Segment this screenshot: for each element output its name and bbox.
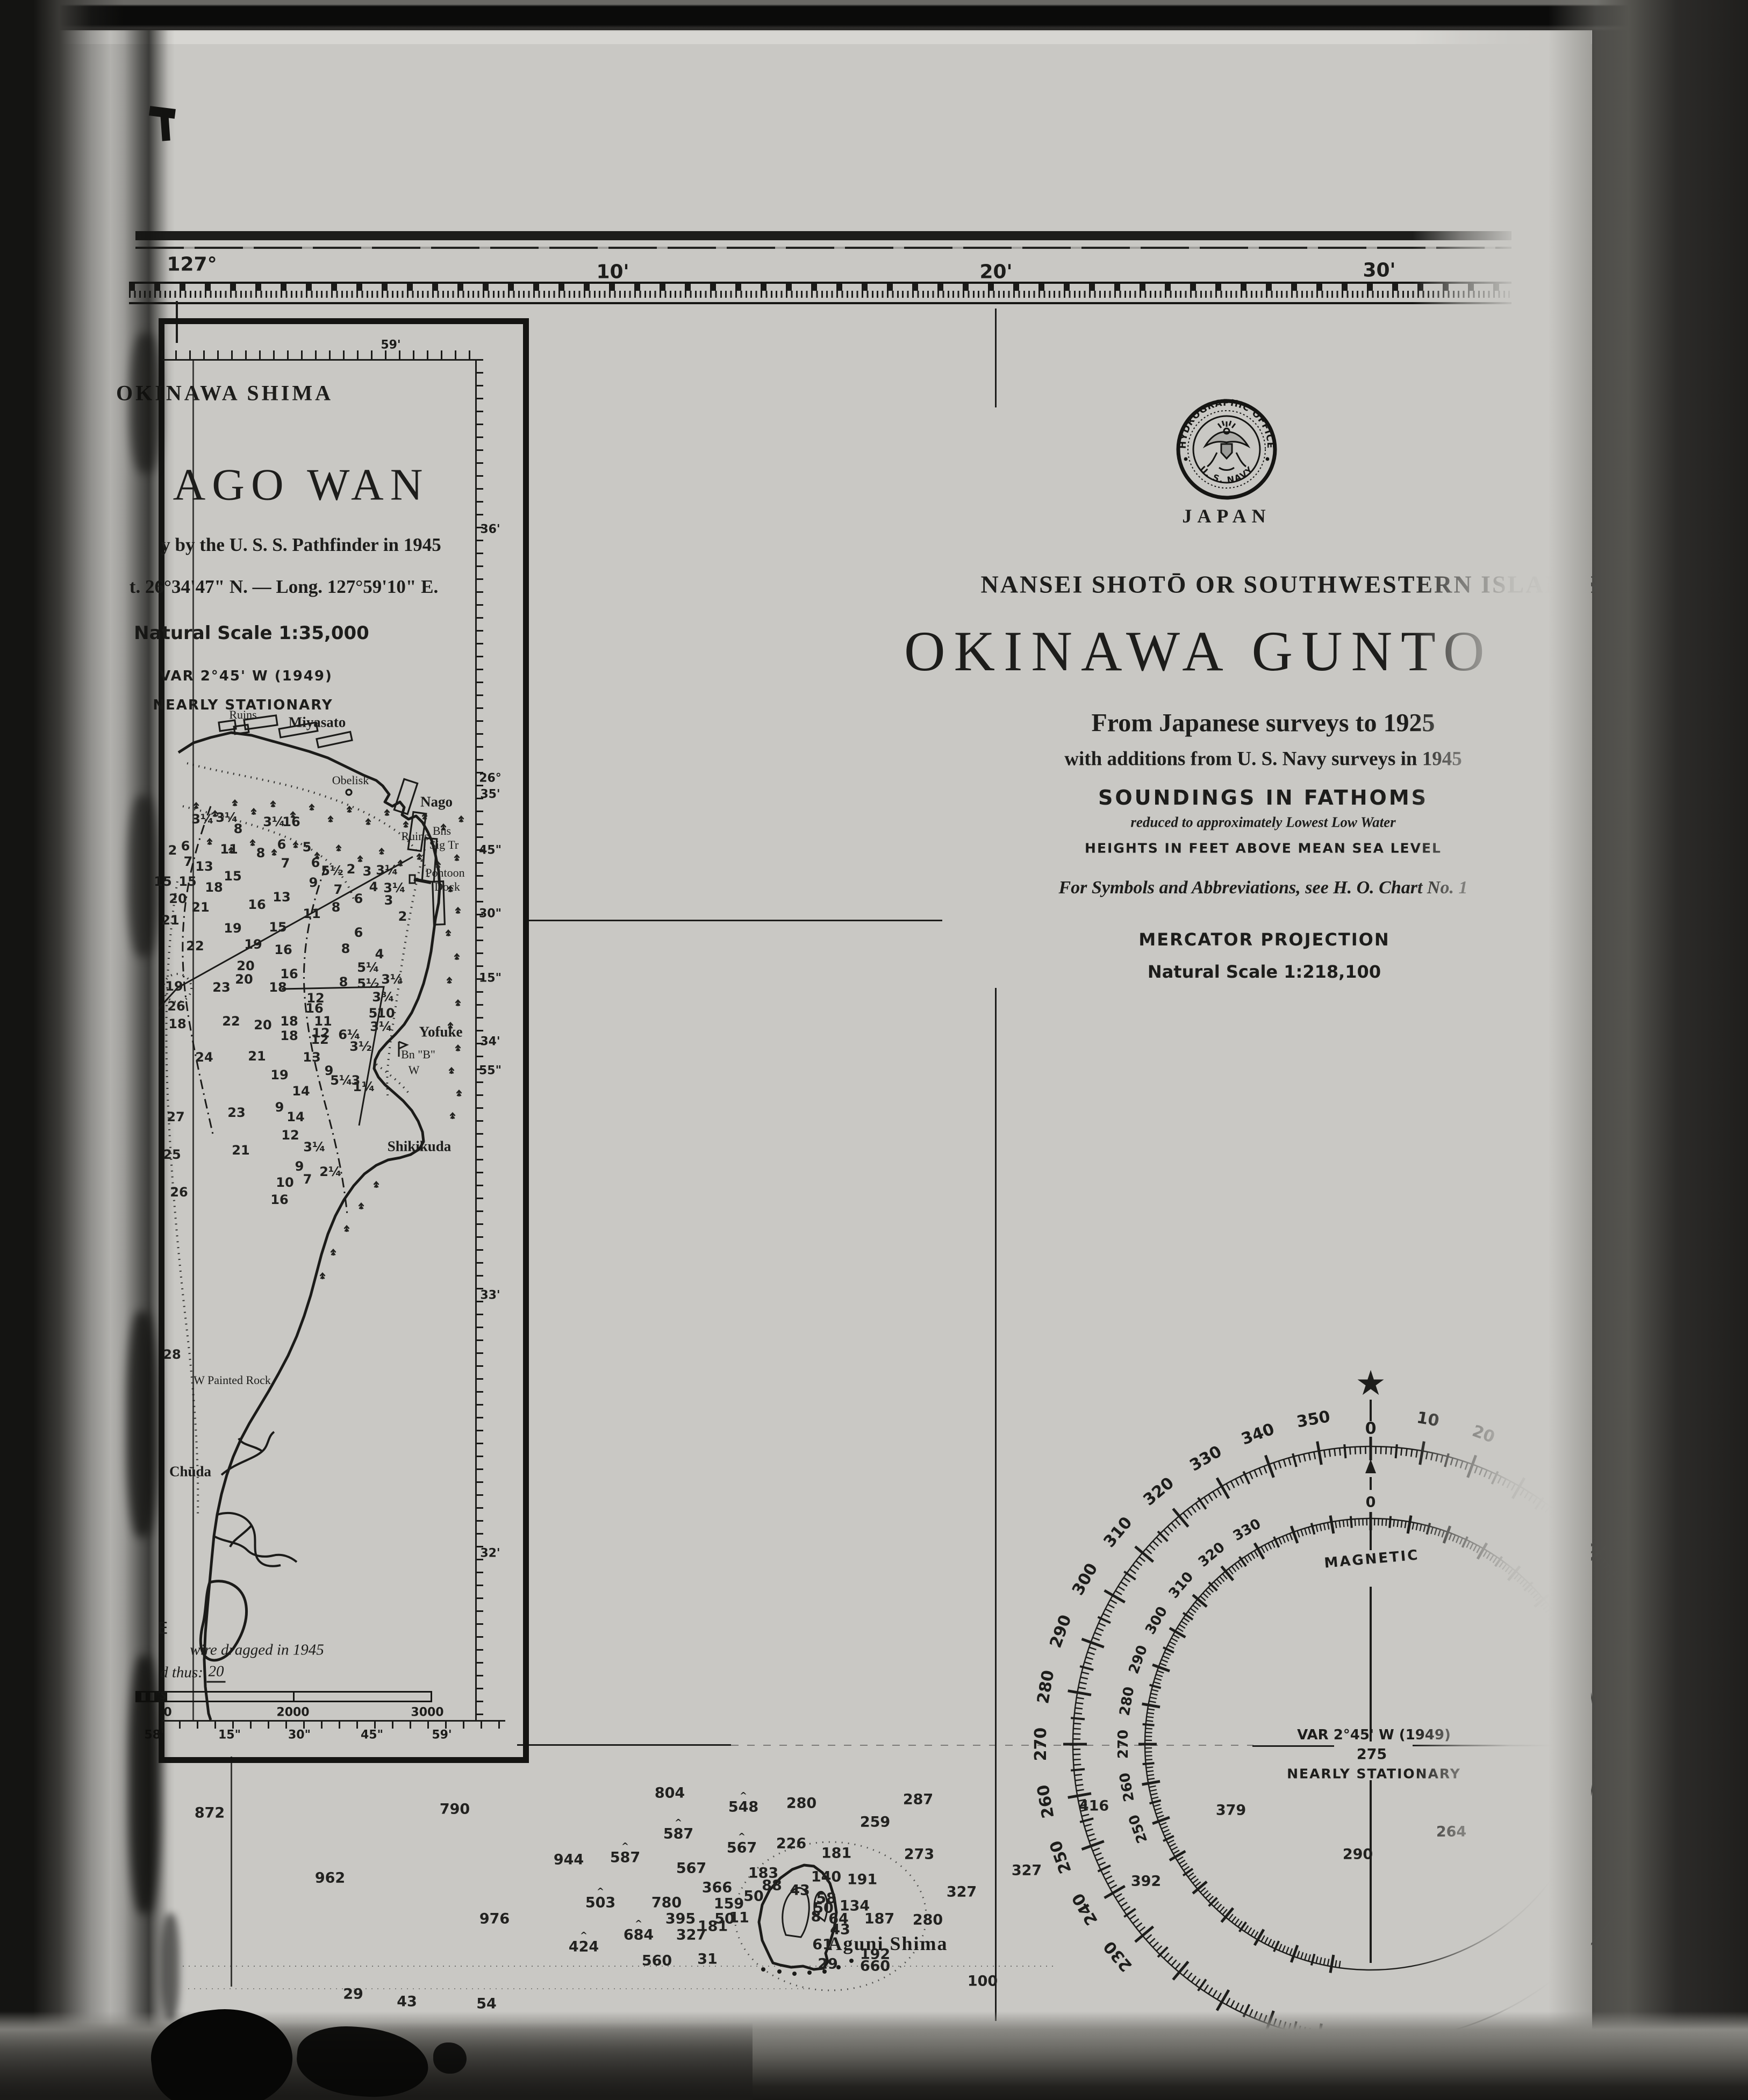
meridian-line — [995, 309, 997, 407]
tuft-icon: ^ — [597, 1887, 604, 1897]
tuft-icon: ^ — [580, 1931, 588, 1941]
sounding-label: 7 — [303, 1172, 312, 1187]
compass-degree-label: 260 — [1034, 1783, 1058, 1820]
compass-tick — [1177, 1857, 1183, 1861]
compass-tick — [1162, 1826, 1168, 1829]
compass-tick — [1355, 1447, 1356, 1454]
compass-tick — [1145, 1732, 1152, 1733]
compass-tick — [1192, 1507, 1196, 1513]
compass-tick — [1110, 1885, 1116, 1889]
sounding-label: 3¼ — [303, 1139, 326, 1155]
compass-tick — [1235, 1564, 1239, 1569]
compass-degree-label: 290 — [1126, 1643, 1151, 1676]
compass-tick — [1143, 1763, 1155, 1764]
compass-tick — [1386, 1519, 1386, 1526]
compass-degree-label: 250 — [1126, 1812, 1151, 1845]
compass-tick — [1139, 1927, 1145, 1932]
compass-tick — [1324, 1450, 1325, 1458]
inset-latitude-label: 55" — [479, 1064, 502, 1078]
compass-tick — [1149, 1545, 1155, 1550]
compass-tick — [1118, 1586, 1124, 1590]
compass-tick — [1079, 1682, 1087, 1684]
compass-tick — [1171, 1638, 1177, 1642]
place-label: Yofuke — [419, 1024, 462, 1041]
compass-tick — [1203, 1890, 1208, 1895]
compass-tick — [1077, 1789, 1084, 1790]
compass-tick — [1220, 1907, 1224, 1912]
meridian-line — [231, 1757, 232, 1987]
compass-tick — [1160, 1663, 1166, 1666]
compass-tick — [1339, 1521, 1341, 1528]
sounding-label: 18 — [280, 1014, 298, 1029]
sounding-label: 944 — [554, 1852, 584, 1868]
compass-tick — [1217, 1904, 1222, 1910]
sounding-label: 9 — [325, 1063, 334, 1078]
compass-tick — [1261, 1547, 1264, 1553]
compass-tick — [1108, 1881, 1114, 1884]
sounding-label: 88 — [762, 1877, 782, 1894]
compass-tick — [1297, 1951, 1299, 1958]
north-star-icon: ★ — [1355, 1364, 1386, 1403]
sounding-label: 3 — [363, 864, 372, 879]
compass-tick — [1317, 1442, 1322, 1465]
sounding-label: 13 — [273, 890, 290, 905]
compass-tick — [1145, 1755, 1152, 1756]
inset-bay-name: AGO WAN — [173, 459, 429, 511]
compass-tick — [1291, 1945, 1298, 1962]
sounding-label: 22 — [186, 938, 204, 954]
compass-tick — [1235, 1919, 1239, 1924]
compass-tick — [1179, 1860, 1185, 1864]
compass-tick — [1324, 1958, 1326, 1965]
sounding-label: 280 — [786, 1795, 816, 1812]
inset-longitude-label: 15" — [218, 1729, 241, 1742]
compass-tick — [1289, 1948, 1292, 1955]
compass-tick — [1200, 1888, 1206, 1893]
sounding-label: 8 — [811, 1909, 821, 1925]
inset-latitude-label: 36' — [480, 523, 500, 536]
inset-latitude-label: 33' — [480, 1289, 500, 1302]
compass-tick — [1255, 1932, 1258, 1938]
sounding-label: 23 — [212, 980, 230, 995]
compass-tick — [1173, 1850, 1179, 1853]
photo-edge-right — [1548, 0, 1748, 2100]
compass-tick — [1136, 1923, 1142, 1927]
note-line: wire dragged in 1945 — [190, 1642, 324, 1659]
compass-tick — [1183, 1970, 1188, 1976]
inset-longitude-ticks-bottom — [161, 1722, 505, 1729]
compass-tick — [1073, 1729, 1081, 1729]
compass-tick — [1084, 1824, 1091, 1826]
compass-tick — [1187, 1973, 1192, 1979]
compass-tick — [1226, 1483, 1230, 1490]
compass-tick — [1330, 1955, 1334, 1973]
compass-tick — [1214, 1902, 1219, 1907]
sounding-label: 13 — [303, 1050, 320, 1065]
compass-degree-label: 340 — [1239, 1420, 1277, 1449]
compass-tick — [1401, 1448, 1401, 1456]
compass-tick — [1170, 1642, 1176, 1645]
compass-tick — [1217, 1993, 1221, 1999]
sounding-label: 7 — [184, 854, 193, 869]
sounding-label: 18 — [205, 880, 223, 895]
compass-tick — [1115, 1894, 1122, 1897]
compass-tick — [1320, 1524, 1322, 1531]
inset-longitude-label: 30" — [288, 1729, 311, 1742]
compass-tick — [1078, 1800, 1086, 1801]
sounding-label: 15 — [178, 874, 196, 889]
compass-tick — [1163, 1830, 1169, 1832]
compass-tick — [1396, 1444, 1397, 1458]
fold-blotch — [129, 1655, 160, 1913]
compass-tick — [1305, 1528, 1307, 1535]
sounding-label: 366 — [702, 1880, 732, 1896]
compass-tick — [1268, 1939, 1271, 1946]
compass-tick — [1401, 1521, 1402, 1528]
sounding-label: 10 — [276, 1175, 293, 1190]
sounding-label: 19 — [270, 1067, 288, 1083]
inset-latitude-label: 15" — [479, 972, 502, 985]
sounding-label: 8 — [234, 821, 243, 836]
compass-tick — [1309, 1453, 1310, 1460]
compass-tick — [1279, 1461, 1281, 1468]
sounding-label: 14 — [286, 1109, 304, 1124]
sounding-label: 976 — [479, 1911, 510, 1927]
compass-tick — [1195, 1503, 1200, 1509]
compass-tick — [1145, 1729, 1152, 1729]
inset-longitude-label: 45" — [361, 1729, 383, 1742]
sounding-label: 9 — [309, 875, 318, 890]
sounding-label: 2 — [347, 862, 356, 877]
sounding-label: 19 — [224, 921, 241, 936]
compass-tick — [1312, 1954, 1315, 1965]
compass-tick — [1339, 1448, 1340, 1456]
sounding-label: 567 — [676, 1860, 706, 1877]
title-country: JAPAN — [1182, 505, 1271, 527]
compass-tick — [1084, 1662, 1091, 1664]
compass-tick — [1386, 1447, 1386, 1454]
soundings-subheading: reduced to approximately Lowest Low Wate… — [1130, 814, 1395, 831]
fold-blotch — [127, 1311, 158, 1537]
chart-neatline-inner — [135, 247, 1511, 249]
compass-tick — [1268, 1543, 1271, 1550]
compass-tick — [1093, 1637, 1100, 1640]
compass-tick — [1073, 1723, 1081, 1724]
sounding-label: 8 — [339, 974, 348, 990]
compass-tick — [1351, 1516, 1352, 1528]
sounding-label: 5 — [369, 1006, 378, 1021]
sounding-label: 275 — [1357, 1746, 1387, 1763]
compass-tick — [1329, 1449, 1330, 1457]
place-label: Bn "B" — [401, 1048, 435, 1062]
inset-latitude-label: 35' — [480, 788, 500, 801]
sounding-label: 273 — [904, 1846, 934, 1863]
compass-tick — [1157, 1671, 1164, 1673]
compass-tick — [1121, 1582, 1127, 1586]
sounding-label: 11 — [220, 842, 238, 857]
compass-tick — [1229, 1914, 1233, 1919]
sounding-label: 8 — [332, 900, 341, 915]
place-label: Sig Tr — [429, 838, 459, 852]
compass-tick — [1073, 1759, 1081, 1760]
sounding-label: 5½ — [357, 976, 379, 991]
compass-tick — [1335, 1521, 1336, 1528]
inset-longitude-label: 59' — [432, 1729, 452, 1742]
sounding-label: 19 — [244, 937, 262, 952]
sounding-label: 962 — [315, 1870, 345, 1887]
compass-tick — [1181, 1621, 1187, 1625]
sounding-label: 15 — [269, 920, 286, 935]
compass-tick — [1154, 1804, 1160, 1807]
compass-tick — [1153, 1942, 1158, 1947]
compass-tick — [1076, 1784, 1083, 1786]
sounding-label: 560 — [642, 1953, 672, 1969]
magnetic-arrow-shaft-south — [1370, 1780, 1372, 1963]
sounding-label: 6 — [354, 925, 363, 940]
sounding-label: 11 — [729, 1910, 749, 1926]
compass-tick — [1087, 1834, 1094, 1836]
compass-degree-label: 320 — [1195, 1539, 1228, 1571]
compass-tick — [1156, 1537, 1162, 1543]
place-label: Obelisk — [332, 773, 369, 787]
compass-tick — [1208, 1587, 1213, 1592]
compass-tick — [1121, 1902, 1127, 1907]
compass-tick — [1222, 1574, 1227, 1579]
sounding-label: 20 — [237, 958, 254, 973]
compass-tick — [1217, 1579, 1222, 1585]
sounding-label: 280 — [913, 1912, 943, 1929]
compass-tick — [1217, 1489, 1221, 1495]
compass-tick — [1147, 1771, 1154, 1772]
compass-degree-label: 320 — [1140, 1473, 1177, 1509]
compass-tick — [1235, 2003, 1238, 2009]
sounding-label: 16 — [274, 942, 292, 957]
compass-tick — [1279, 1538, 1281, 1544]
sounding-label: 780 — [651, 1895, 682, 1911]
compass-tick — [1151, 1694, 1158, 1695]
sounding-label: 10 — [377, 1006, 395, 1021]
inset-variation-line: VAR 2°45' W (1949) — [160, 668, 333, 684]
sounding-label: 4 — [369, 879, 378, 894]
compass-tick — [1103, 1614, 1110, 1617]
sounding-label: 16 — [305, 1001, 323, 1016]
compass-tick — [1164, 1953, 1169, 1958]
compass-tick — [1105, 1609, 1112, 1612]
inset-latitude-label: 32' — [480, 1547, 500, 1560]
compass-tick — [1081, 1815, 1089, 1816]
compass-tick — [1195, 1979, 1200, 1985]
chart-neatline — [135, 231, 1511, 240]
sounding-label: 20 — [235, 972, 253, 987]
compass-tick — [1142, 1781, 1160, 1784]
sounding-label: 43 — [397, 1994, 417, 2010]
compass-tick — [1350, 1447, 1350, 1454]
compass-tick — [1093, 1848, 1100, 1851]
compass-tick — [1068, 1691, 1091, 1695]
compass-tick — [1162, 1660, 1168, 1662]
compass-tick — [1080, 1809, 1088, 1811]
fold-blotch — [130, 333, 161, 473]
compass-tick — [1156, 1674, 1163, 1676]
compass-tick — [1286, 1535, 1289, 1542]
compass-tick — [1255, 1470, 1257, 1477]
place-label: Miyasato — [289, 714, 346, 731]
sounding-label: 43 — [790, 1882, 810, 1899]
compass-tick — [1394, 1520, 1394, 1526]
compass-tick — [1164, 1652, 1171, 1655]
place-label: Ruins — [401, 829, 428, 843]
inset-latitude-label: 30" — [479, 907, 502, 921]
sounding-label: 2 — [398, 909, 407, 924]
sounding-label: 21 — [248, 1049, 266, 1064]
compass-tick — [1079, 1804, 1087, 1806]
inset-latitude-label: 34' — [480, 1035, 500, 1049]
natural-scale-line: Natural Scale 1:218,100 — [1148, 962, 1381, 982]
sounding-label: 395 — [665, 1911, 696, 1927]
compass-tick — [1347, 1520, 1348, 1526]
compass-tick — [1222, 1909, 1227, 1915]
sounding-label: 6 — [181, 838, 190, 854]
compass-tick — [1195, 1602, 1201, 1607]
compass-tick — [1130, 1569, 1136, 1573]
inset-latitude-label: 26° — [479, 772, 502, 785]
compass-tick — [1103, 1872, 1110, 1875]
compass-tick — [1146, 1767, 1153, 1768]
compass-tick — [1406, 1449, 1407, 1456]
compass-tick — [1150, 1790, 1157, 1791]
note-depth-figure: 20 — [207, 1663, 226, 1683]
place-label: Chūda — [169, 1464, 211, 1480]
compass-tick — [1231, 2001, 1235, 2007]
compass-tick — [1157, 1816, 1164, 1818]
sounding-label: 61 — [812, 1937, 833, 1953]
compass-tick — [1171, 1847, 1177, 1850]
eagle-icon — [1205, 421, 1248, 470]
compass-tick — [1328, 1523, 1329, 1530]
longitude-label: 30' — [1363, 260, 1395, 282]
compass-tick — [1193, 1879, 1198, 1883]
sounding-label: 287 — [903, 1791, 933, 1808]
compass-tick — [1264, 1466, 1266, 1473]
place-label: W Painted Rock — [194, 1373, 271, 1387]
compass-tick — [1206, 1894, 1211, 1898]
compass-tick — [1184, 1618, 1190, 1622]
compass-tick — [1164, 1833, 1171, 1836]
sounding-label: 684^ — [624, 1927, 654, 1944]
compass-tick — [1193, 1605, 1198, 1609]
sounding-label: 21 — [232, 1143, 249, 1158]
compass-tick — [1214, 1582, 1219, 1587]
sounding-label: 140 — [811, 1869, 841, 1886]
compass-degree-label: 300 — [1142, 1604, 1171, 1637]
compass-tick — [1265, 1937, 1268, 1943]
compass-tick — [1076, 1703, 1083, 1704]
compass-tick — [1078, 1687, 1086, 1689]
compass-tick — [1133, 1565, 1139, 1569]
sounding-label: 3¼ — [191, 812, 214, 827]
compass-tick — [1308, 1527, 1310, 1533]
compass-tick — [1188, 1873, 1194, 1877]
compass-tick — [1147, 1717, 1154, 1718]
inset-survey-line: y by the U. S. S. Pathfinder in 1945 — [161, 534, 441, 556]
compass-tick — [1151, 1794, 1158, 1795]
sounding-label: 327 — [947, 1884, 977, 1901]
sounding-label: 31 — [697, 1951, 718, 1968]
compass-tick — [1074, 1713, 1082, 1714]
tuft-icon: ^ — [738, 1832, 746, 1843]
symbols-note: For Symbols and Abbreviations, see H. O.… — [1059, 878, 1468, 898]
compass-tick — [1164, 1530, 1169, 1535]
sounding-label: 16 — [270, 1192, 288, 1207]
compass-tick — [1238, 1921, 1242, 1927]
sounding-label: 567^ — [727, 1840, 757, 1857]
compass-tick — [1167, 1526, 1173, 1532]
compass-tick — [1086, 1829, 1093, 1831]
compass-degree-label: 270 — [1115, 1730, 1131, 1759]
sounding-label: 22 — [222, 1014, 240, 1029]
sounding-label: 259 — [860, 1814, 890, 1831]
compass-tick — [1087, 1652, 1094, 1654]
chart-title: OKINAWA GUNTO — [904, 619, 1493, 684]
inset-scale-bar — [135, 1691, 432, 1702]
compass-tick — [1077, 1697, 1084, 1698]
title-source-line1: From Japanese surveys to 1925 — [1091, 708, 1435, 738]
compass-tick — [1145, 1759, 1152, 1760]
compass-tick — [1154, 1682, 1160, 1684]
magnetic-arrow-shaft — [1370, 1587, 1372, 1741]
compass-tick — [1291, 1526, 1298, 1543]
sounding-label: 3¼ — [381, 972, 404, 987]
compass-tick — [1334, 1449, 1335, 1456]
sounding-label: 29 — [343, 1986, 363, 2003]
compass-tick — [1305, 1953, 1307, 1960]
sounding-label: 503^ — [585, 1895, 615, 1911]
compass-tick — [1203, 1593, 1208, 1598]
compass-tick — [1208, 1494, 1213, 1501]
fold-blotch — [128, 795, 159, 957]
compass-degree-label: 310 — [1100, 1513, 1136, 1551]
tuft-icon: ^ — [740, 1791, 747, 1802]
inset-latitude-label: 45" — [479, 844, 502, 857]
sounding-label: 24 — [195, 1050, 213, 1065]
compass-tick — [1231, 1481, 1235, 1488]
compass-tick — [1213, 1990, 1216, 1997]
compass-degree-label: 280 — [1034, 1669, 1058, 1705]
parallel-line — [524, 920, 942, 921]
compass-tick — [1173, 1635, 1179, 1638]
sounding-label: 29 — [818, 1956, 838, 1973]
compass-tick — [1272, 1542, 1275, 1548]
compass-tick — [1136, 1561, 1142, 1566]
sounding-label: 7 — [334, 882, 343, 897]
longitude-label: 20' — [979, 261, 1012, 283]
sounding-label: 12 — [311, 1032, 328, 1047]
compass-north-stem — [1370, 1400, 1372, 1421]
compass-tick — [1250, 1472, 1253, 1479]
compass-tick — [1195, 1882, 1201, 1886]
compass-tick — [1179, 1624, 1185, 1628]
sounding-label: 18 — [280, 1028, 298, 1043]
tuft-icon: ^ — [635, 1919, 642, 1930]
compass-tick — [1208, 1896, 1213, 1901]
magnetic-zero-label: 0 — [1366, 1494, 1376, 1511]
compass-tick — [1208, 1988, 1213, 1994]
compass-tick — [1080, 1677, 1088, 1679]
compass-tick — [1073, 1765, 1081, 1765]
compass-tick — [1229, 1569, 1233, 1574]
compass-tick — [1405, 1521, 1406, 1528]
sounding-label: 872 — [195, 1805, 225, 1822]
